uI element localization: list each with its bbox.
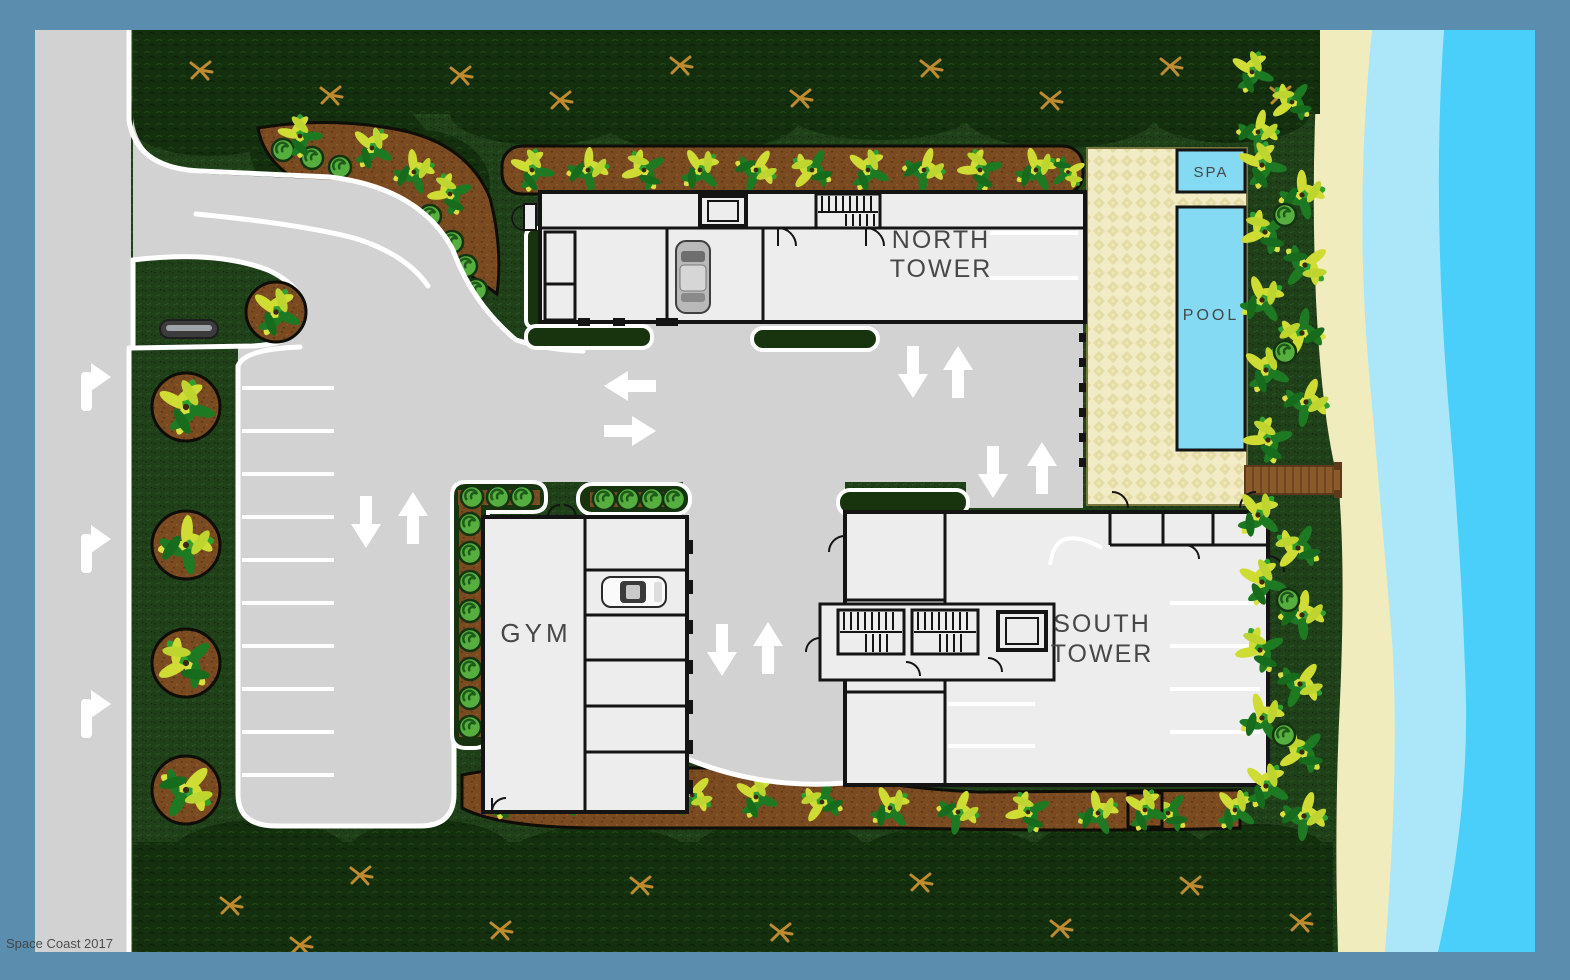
bench (160, 320, 218, 338)
garage-car-gray (676, 241, 710, 313)
spa-label: SPA (1194, 164, 1229, 181)
north-tower-label-line1: NORTH (892, 226, 990, 254)
north-tower: NORTH TOWER (512, 192, 1085, 326)
south-tower-label-line2: TOWER (1051, 640, 1154, 668)
pool-deck: SPA POOL (1079, 148, 1247, 505)
north-tower-label-line2: TOWER (890, 255, 993, 283)
garage-car-white (602, 577, 666, 607)
south-tower-label-line1: SOUTH (1053, 610, 1151, 638)
gym-label: GYM (500, 618, 571, 648)
pool-label: POOL (1183, 307, 1239, 324)
gym-building: GYM (483, 505, 693, 812)
hedge-north-tower-south (752, 328, 878, 350)
site-plan-drawing: SPA POOL (0, 0, 1570, 980)
stair-block (806, 604, 1054, 680)
pool (1177, 207, 1245, 450)
tree-canopy-bottom (133, 820, 1333, 954)
hedge-island-gym-north (578, 484, 690, 514)
boardwalk (1245, 462, 1342, 498)
south-tower: SOUTH TOWER (806, 492, 1284, 785)
site-plan: SPA POOL (0, 0, 1570, 980)
watermark: Space Coast 2017 (6, 936, 113, 951)
